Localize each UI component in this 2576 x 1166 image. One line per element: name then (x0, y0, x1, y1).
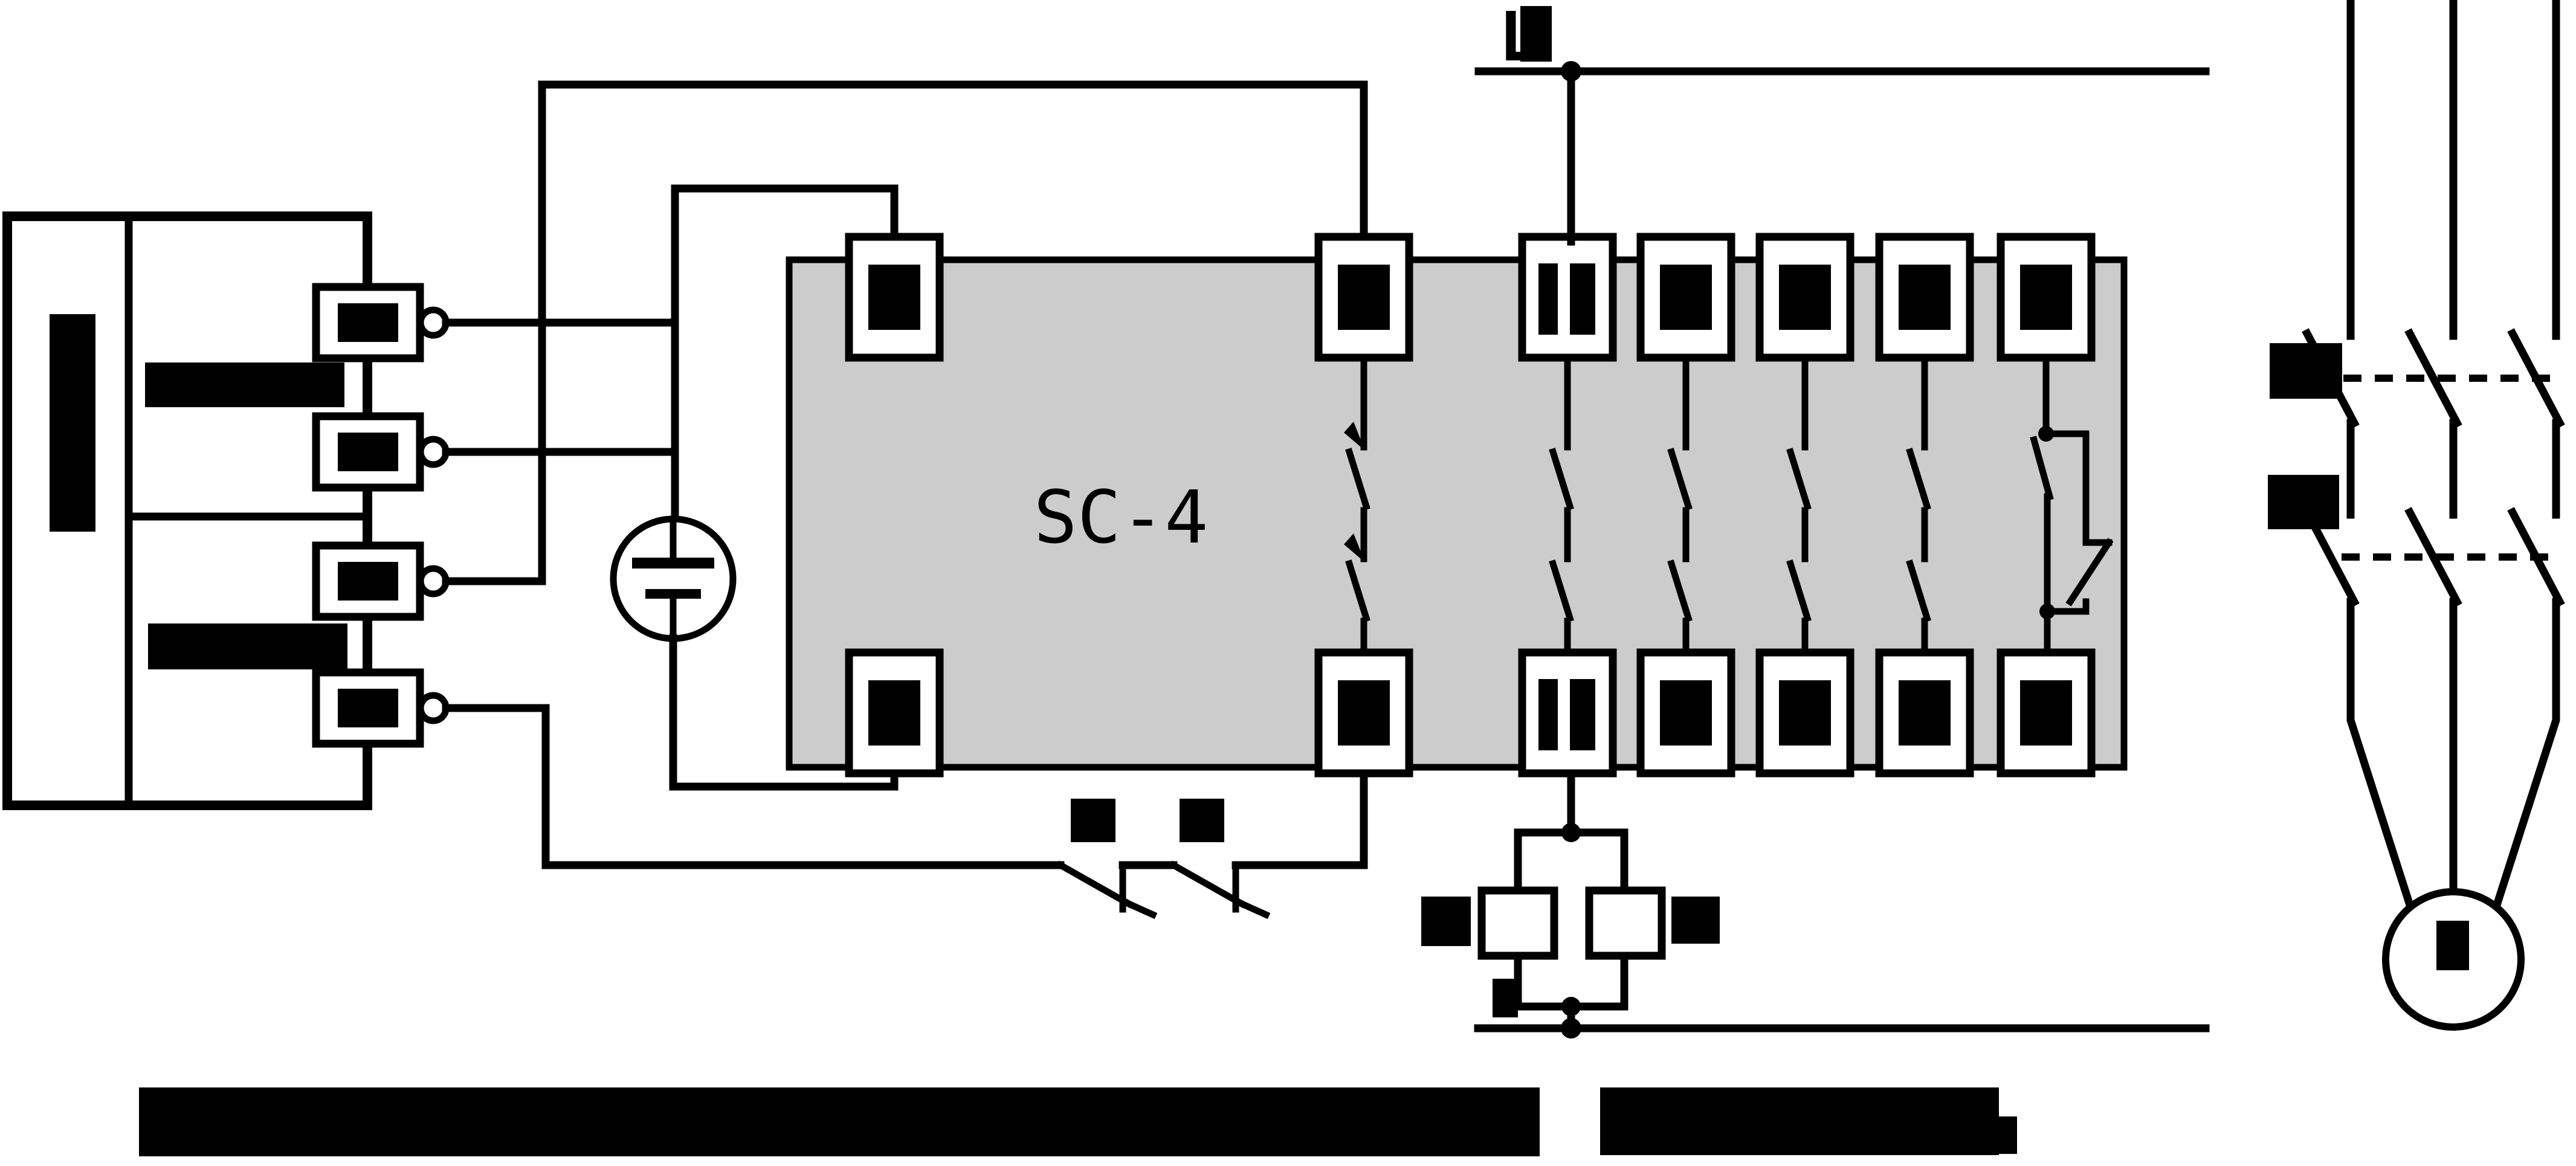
relay-terminal-bottom-6 (1879, 652, 1970, 773)
device-terminal-3 (316, 546, 420, 617)
motor-icon (2386, 892, 2521, 1027)
redacted-motor-label (2436, 921, 2469, 970)
redacted-lower-section-label (148, 623, 347, 669)
redacted-contactor2-label (2268, 475, 2339, 529)
relay-model-text: SC-4 (1034, 476, 1209, 560)
redacted-branch-left-label (1421, 897, 1471, 946)
relay-terminal-top-3 (1522, 237, 1613, 358)
device-terminal-2 (316, 416, 420, 488)
relay-terminal-bottom-4 (1641, 652, 1731, 773)
indicator-element-right (1589, 891, 1662, 956)
caption-redacted-tail (1998, 1116, 2017, 1154)
device-terminal-1 (316, 287, 420, 358)
redacted-contactor1-label (2270, 343, 2342, 399)
relay-terminal-top-2 (1319, 237, 1409, 358)
relay-terminal-bottom-7 (2001, 652, 2091, 773)
redacted-vertical-label (50, 314, 95, 532)
battery-icon (613, 519, 733, 639)
caption-redacted-bar-1 (139, 1087, 1540, 1156)
relay-terminal-top-5 (1760, 237, 1850, 358)
redacted-button2-label (1180, 799, 1224, 842)
caption-redacted-bar-2 (1600, 1087, 1999, 1155)
relay-terminal-bottom-3 (1522, 652, 1613, 773)
relay-terminal-top-7 (2001, 237, 2091, 358)
relay-unit: SC-4 (789, 237, 2124, 773)
relay-terminal-top-1 (849, 237, 940, 358)
device-terminal-4 (316, 672, 420, 744)
relay-terminal-bottom-2 (1319, 652, 1409, 773)
redacted-button1-label (1071, 799, 1115, 842)
circuit-diagram: SC-4 (0, 0, 2576, 1166)
caption (139, 1087, 2017, 1156)
redacted-l-suffix (1520, 6, 1552, 62)
relay-terminal-top-4 (1641, 237, 1731, 358)
indicator-element-left (1482, 891, 1554, 956)
relay-terminal-bottom-5 (1760, 652, 1850, 773)
redacted-upper-section-label (145, 362, 344, 407)
relay-terminal-top-6 (1879, 237, 1970, 358)
redacted-branch-right-label (1671, 897, 1720, 944)
relay-terminal-bottom-1 (849, 652, 940, 773)
